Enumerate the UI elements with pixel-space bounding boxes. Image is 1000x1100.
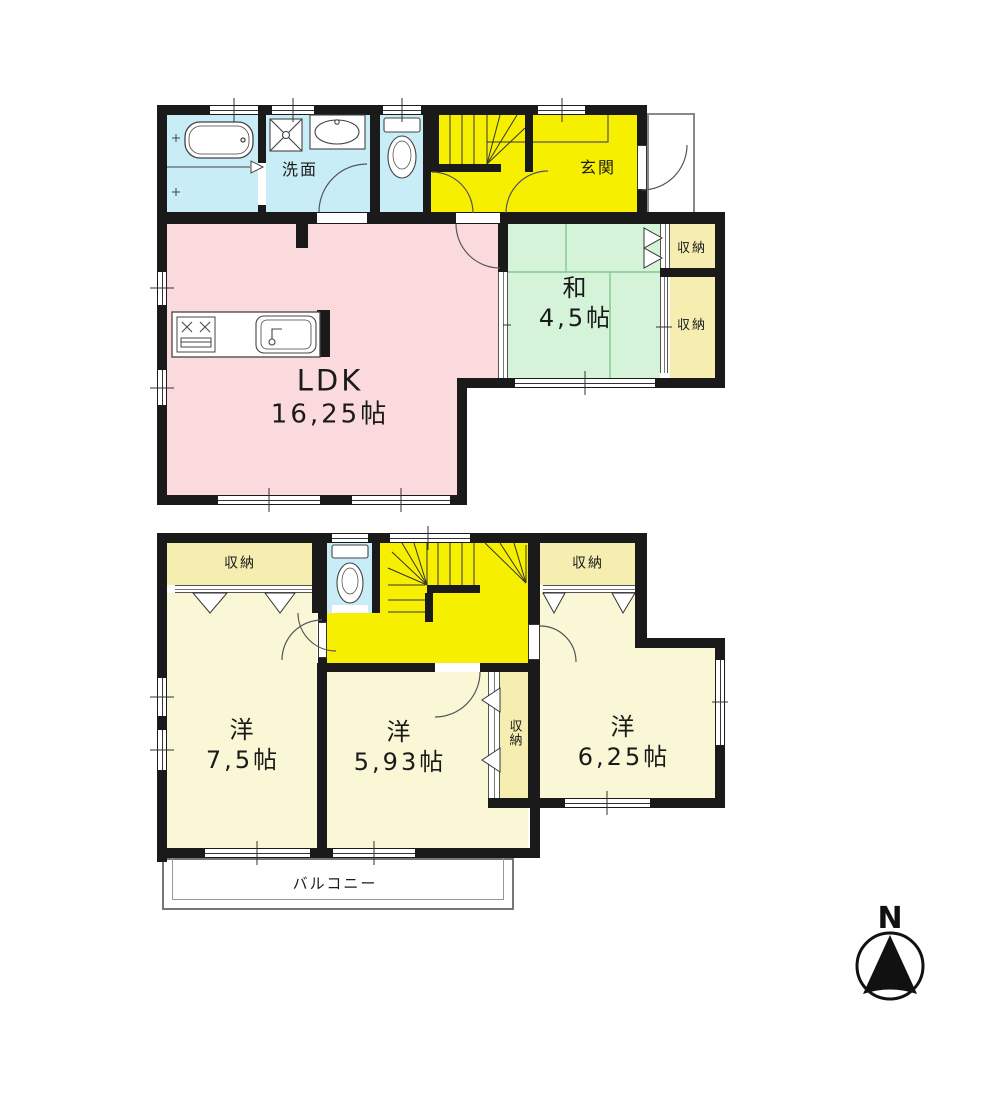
label-balcony: バルコニー [293,875,378,894]
sliding-door-storage-lower [660,277,668,373]
window [333,848,415,858]
wall [488,798,530,808]
window [272,105,314,115]
door-opening-ldk [456,213,500,223]
window [715,660,725,745]
window [390,533,470,543]
label-washitsu: 和 4,5帖 [539,273,613,333]
label-washitsu-size: 4,5帖 [539,303,613,333]
window [218,495,320,505]
label-bedroom-625: 洋 6,25帖 [578,712,670,772]
wall-stub [296,224,308,248]
compass-circle [857,933,923,999]
door-opening-senmen [317,213,367,223]
entrance-porch [647,113,695,220]
door-leaf-bedroom-625 [528,624,540,660]
window [157,370,167,405]
wall [635,638,725,648]
wall [370,115,380,212]
wall [312,533,327,613]
wall [327,663,530,672]
room-toilet-2f [327,543,372,613]
label-storage-upper: 収納 [677,241,707,257]
wall [157,105,167,505]
wall-stairbox [431,164,501,172]
label-senmen: 洗面 [282,160,318,180]
label-bedroom-625-name: 洋 [578,712,670,742]
compass-north-label: N [877,901,902,936]
wall [498,224,508,272]
label-ldk-name: LDK [271,363,389,399]
wall [660,268,725,277]
label-bedroom-75: 洋 7,5帖 [206,715,280,775]
wall [457,378,467,505]
label-bedroom-75-name: 洋 [206,715,280,745]
compass: N [857,901,923,999]
window [352,495,450,505]
sliding-door-ldk-washitsu [498,272,508,378]
label-washitsu-name: 和 [539,273,613,303]
room-bathroom [167,115,258,212]
wall [715,212,725,388]
window [515,378,655,388]
door-opening-bedroom-593 [435,663,480,672]
window [538,105,585,115]
window [157,678,167,716]
label-bedroom-593-name: 洋 [354,717,446,747]
wall-kitchen-pillar [317,310,330,357]
label-bedroom-75-size: 7,5帖 [206,745,280,775]
label-genkan: 玄関 [580,158,616,178]
window [205,848,310,858]
window [332,533,368,543]
room-bedroom-625-upper [540,593,635,648]
door-leaf-bedroom-75 [318,622,327,658]
wall [635,533,647,648]
room-ldk-upper [167,224,498,378]
window [210,105,258,115]
floorplan-canvas: N 洗面 玄関 LDK 16,25帖 和 4,5帖 収納 収納 収納 収納 洋 … [0,0,1000,1100]
wall [423,115,431,212]
room-hall-2f [327,613,380,663]
compass-needle-icon [863,935,917,994]
closet-opening-storage-upper [660,224,670,268]
window [565,798,650,808]
wall-stair-landing [427,585,480,593]
label-storage-lower: 収納 [677,318,707,334]
window [157,272,167,305]
room-bedroom-593-nook [490,806,528,848]
closet-door-2f-mid [488,672,500,798]
wall-stairbox [525,115,533,172]
wall [530,808,540,858]
label-ldk-size: 16,25帖 [271,399,389,432]
wall-stair-landing [425,593,433,622]
label-bedroom-593: 洋 5,93帖 [354,717,446,777]
label-bedroom-593-size: 5,93帖 [354,747,446,777]
label-closet-2f-mid: 収納 [505,719,524,747]
window [383,105,421,115]
window [157,730,167,770]
label-closet-2f-left: 収納 [224,555,256,573]
closet-door-2f-right [543,585,635,593]
door-opening-toilet-2f [332,605,368,613]
label-bedroom-625-size: 6,25帖 [578,742,670,772]
label-ldk: LDK 16,25帖 [271,363,389,432]
wall [372,533,380,613]
wall [157,212,725,224]
door-opening-bath [258,163,266,205]
room-toilet-1f [380,115,423,212]
wall [317,663,327,858]
entrance-door-leaf [637,145,647,190]
room-stairs-2f [380,543,528,663]
closet-door-2f-left [175,585,312,593]
label-closet-2f-right: 収納 [572,555,604,573]
